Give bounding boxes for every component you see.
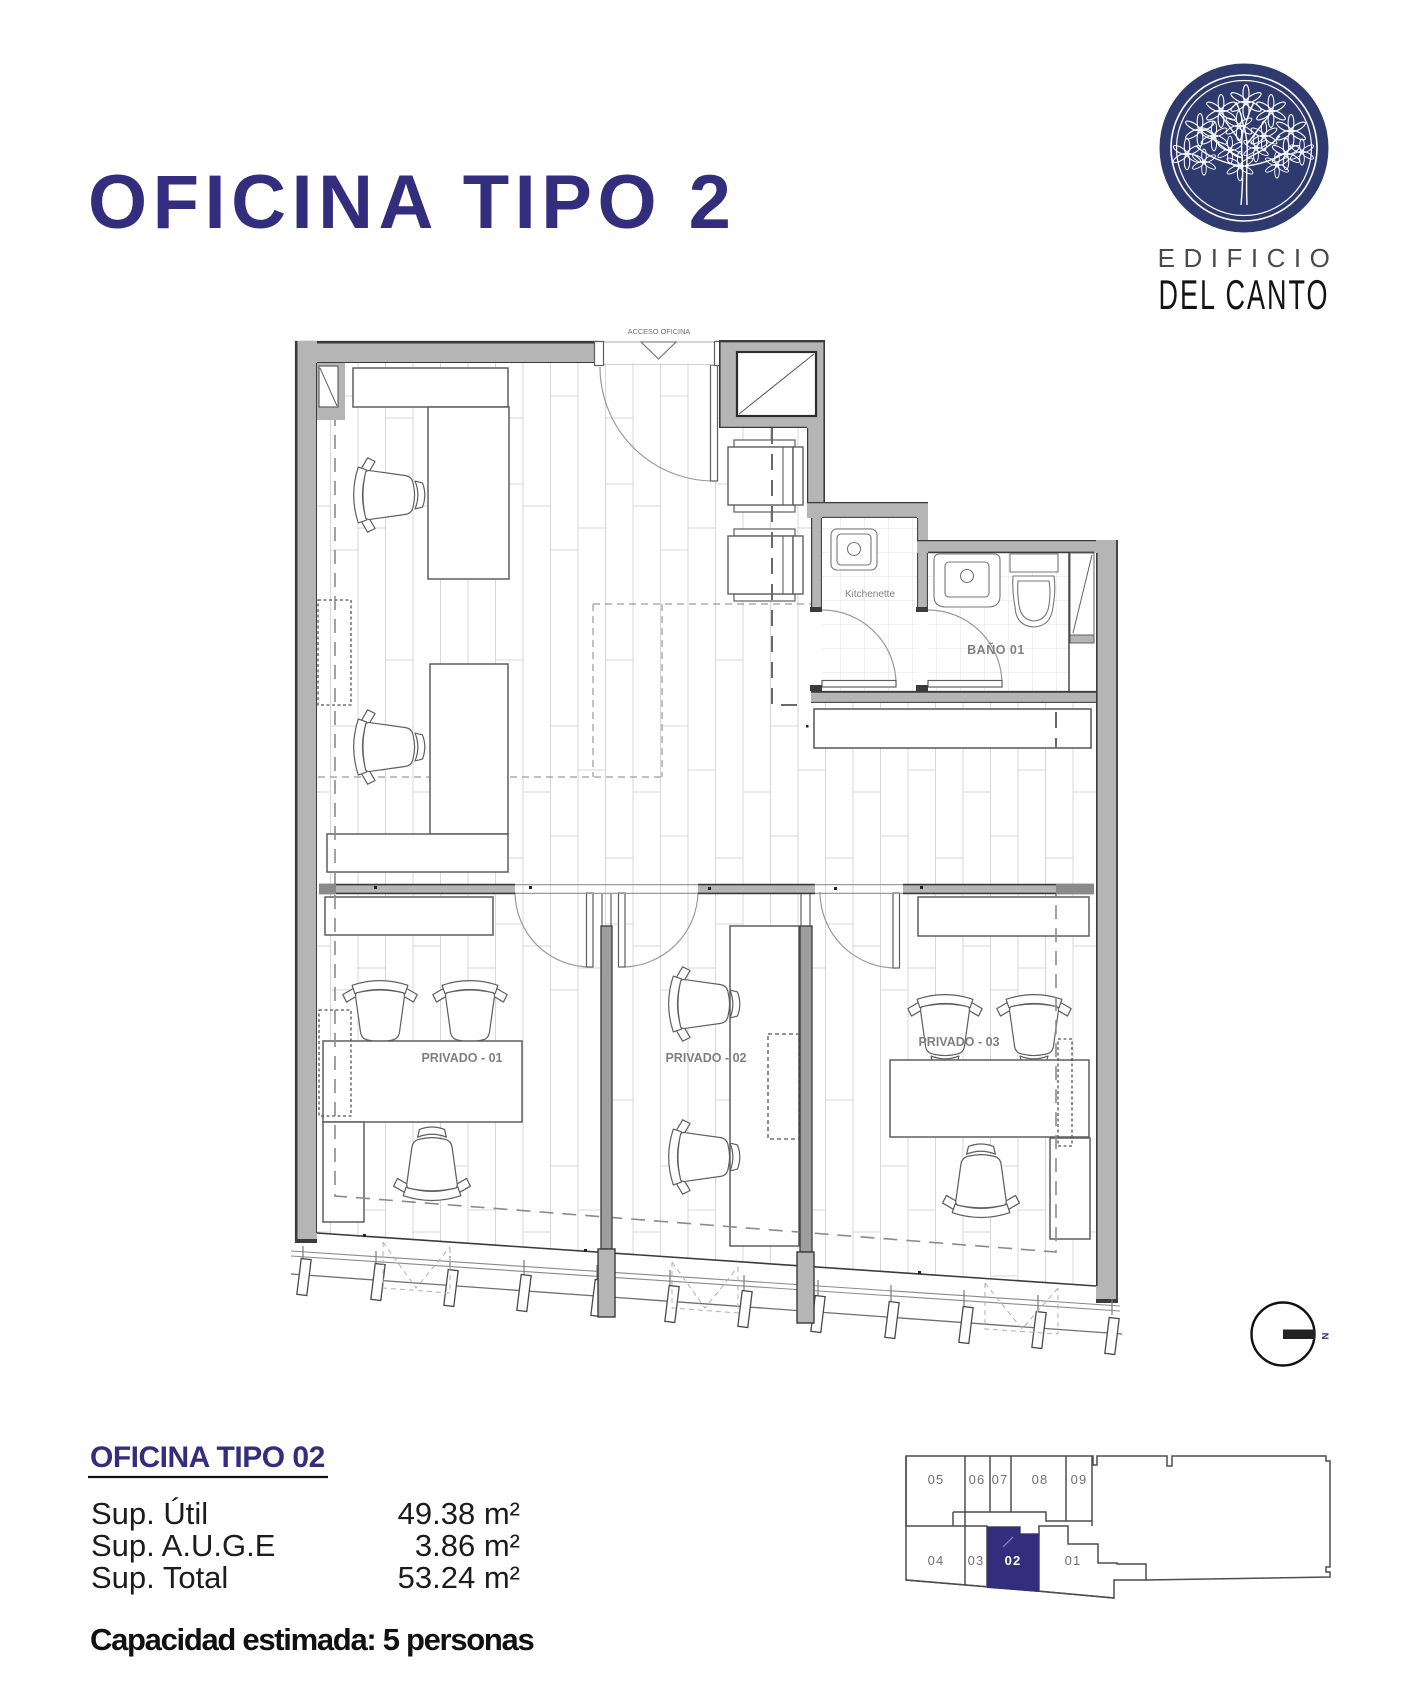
svg-text:3.86 m²: 3.86 m² — [415, 1528, 520, 1563]
svg-text:03: 03 — [968, 1553, 985, 1568]
svg-text:Sup. Útil: Sup. Útil — [91, 1496, 208, 1531]
svg-text:05: 05 — [928, 1472, 945, 1487]
svg-text:53.24 m²: 53.24 m² — [398, 1560, 520, 1595]
svg-text:06: 06 — [969, 1472, 986, 1487]
svg-text:08: 08 — [1032, 1472, 1049, 1487]
svg-text:N: N — [1319, 1333, 1330, 1340]
svg-text:01: 01 — [1065, 1553, 1082, 1568]
svg-text:02: 02 — [1005, 1553, 1022, 1568]
svg-text:49.38 m²: 49.38 m² — [398, 1496, 520, 1531]
svg-text:DEL CANTO: DEL CANTO — [1159, 272, 1330, 318]
svg-text:OFICINA TIPO 02: OFICINA TIPO 02 — [90, 1441, 325, 1474]
svg-text:Sup. A.U.G.E: Sup. A.U.G.E — [91, 1528, 275, 1563]
svg-text:PRIVADO - 03: PRIVADO - 03 — [918, 1035, 999, 1049]
svg-text:BAÑO 01: BAÑO 01 — [967, 642, 1025, 657]
svg-text:04: 04 — [928, 1553, 945, 1568]
svg-text:09: 09 — [1071, 1472, 1088, 1487]
svg-text:PRIVADO - 01: PRIVADO - 01 — [421, 1051, 502, 1065]
svg-text:ACCESO OFICINA: ACCESO OFICINA — [628, 327, 691, 336]
svg-text:Capacidad estimada: 5 personas: Capacidad estimada: 5 personas — [90, 1622, 533, 1657]
svg-text:OFICINA TIPO 2: OFICINA TIPO 2 — [88, 160, 736, 245]
svg-text:Kitchenette: Kitchenette — [845, 589, 895, 600]
svg-text:07: 07 — [992, 1472, 1009, 1487]
svg-text:Sup. Total: Sup. Total — [91, 1560, 228, 1595]
svg-text:PRIVADO - 02: PRIVADO - 02 — [665, 1051, 746, 1065]
svg-text:EDIFICIO: EDIFICIO — [1158, 243, 1339, 273]
